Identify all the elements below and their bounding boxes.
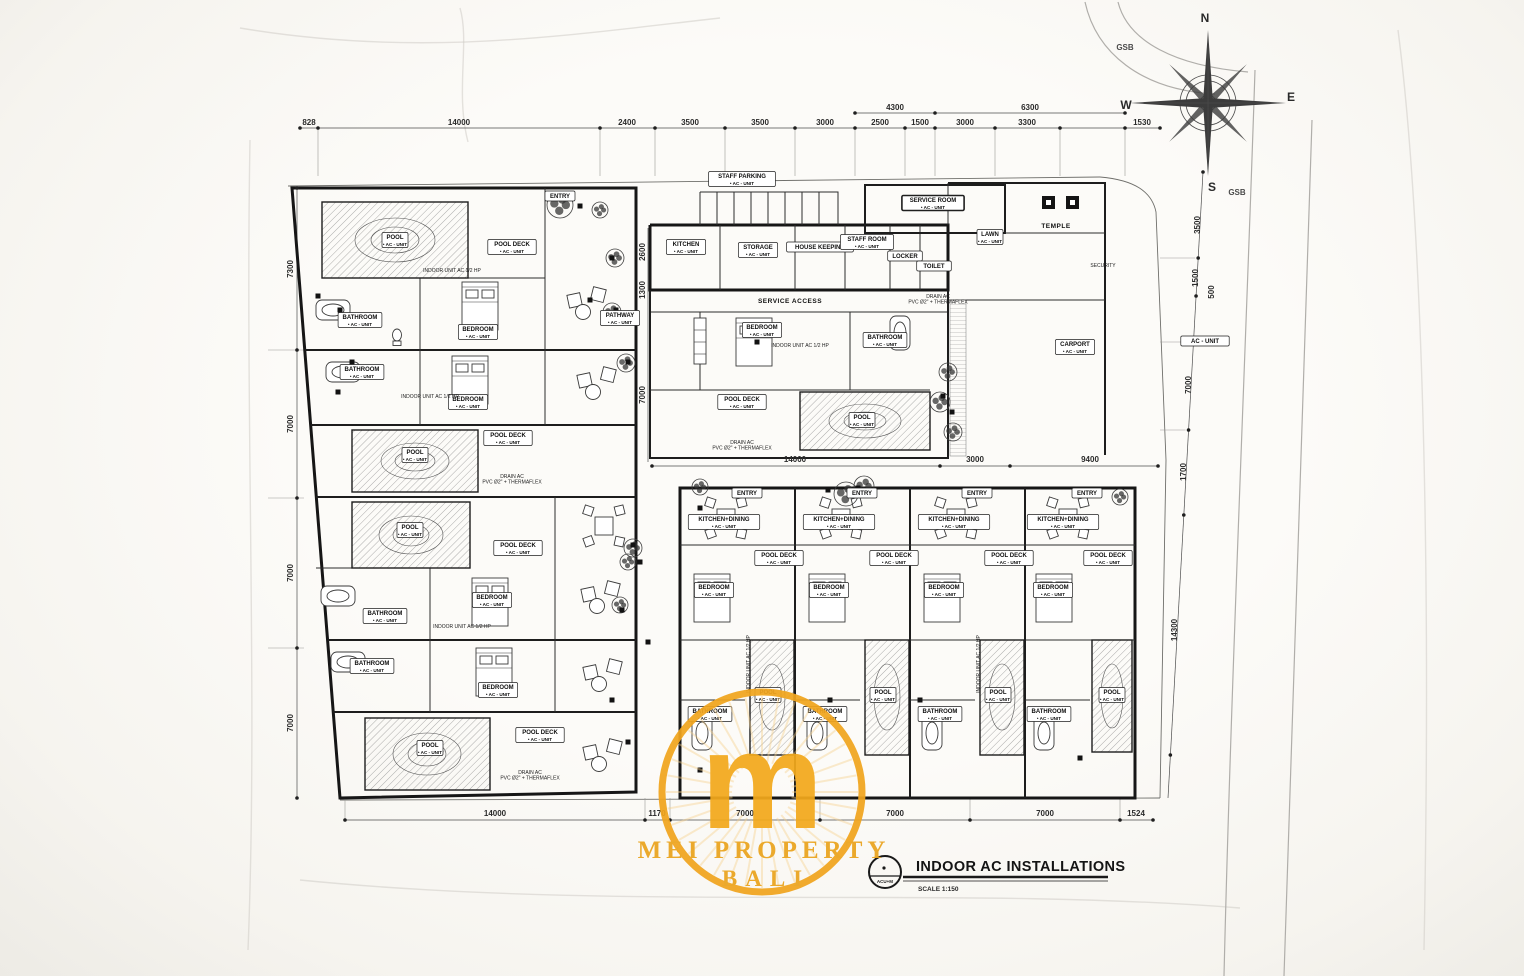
svg-text:POOL: POOL — [874, 690, 891, 696]
annotation-note: TEMPLE — [1041, 223, 1071, 230]
room-tag: STORAGE• AC - UNIT — [738, 243, 777, 258]
room-tag: POOL DECK• AC - UNIT — [516, 728, 564, 743]
svg-text:• AC - UNIT: • AC - UNIT — [712, 524, 736, 529]
ac-unit-point — [941, 394, 946, 399]
dimension-label: 3300 — [1018, 118, 1036, 127]
svg-text:• AC - UNIT: • AC - UNIT — [1051, 524, 1075, 529]
room-tag: KITCHEN+DINING• AC - UNIT — [1027, 515, 1098, 530]
ac-unit-point — [631, 543, 636, 548]
svg-text:BEDROOM: BEDROOM — [1037, 585, 1068, 591]
room-tag: POOL• AC - UNIT — [382, 233, 408, 248]
dimension-label: 1524 — [1127, 809, 1145, 818]
ac-unit-point — [950, 410, 955, 415]
dimension-label: 14300 — [1170, 618, 1179, 641]
ac-unit-point — [1078, 756, 1083, 761]
svg-text:• AC - UNIT: • AC - UNIT — [928, 716, 952, 721]
dimension-label: 9400 — [1081, 455, 1099, 464]
svg-text:STAFF PARKING: STAFF PARKING — [718, 174, 766, 180]
svg-text:• AC - UNIT: • AC - UNIT — [528, 737, 552, 742]
room-tag: POOL• AC - UNIT — [849, 413, 875, 428]
dimension-label: 2400 — [618, 118, 636, 127]
svg-text:KITCHEN+DINING: KITCHEN+DINING — [1037, 517, 1089, 523]
svg-text:BATHROOM: BATHROOM — [355, 661, 390, 667]
svg-text:POOL DECK: POOL DECK — [761, 553, 797, 559]
dimension-label: 7000 — [638, 386, 647, 404]
dimension-label: 7000 — [286, 564, 295, 582]
svg-text:BATHROOM: BATHROOM — [343, 315, 378, 321]
svg-text:BATHROOM: BATHROOM — [368, 611, 403, 617]
svg-text:• AC - UNIT: • AC - UNIT — [1041, 592, 1065, 597]
dimension-label: 14000 — [484, 809, 507, 818]
svg-text:• AC - UNIT: • AC - UNIT — [767, 560, 791, 565]
svg-text:• AC - UNIT: • AC - UNIT — [608, 320, 632, 325]
svg-text:• AC - UNIT: • AC - UNIT — [921, 205, 945, 210]
room-tag: POOL DECK• AC - UNIT — [870, 551, 918, 566]
annotation-note: PVC Ø2" + THERMAFLEX — [482, 480, 542, 486]
room-tag: BATHROOM• AC - UNIT — [350, 659, 394, 674]
svg-text:POOL DECK: POOL DECK — [490, 433, 526, 439]
svg-text:• AC - UNIT: • AC - UNIT — [873, 342, 897, 347]
svg-text:ENTRY: ENTRY — [1077, 491, 1097, 497]
room-tag: POOL DECK• AC - UNIT — [755, 551, 803, 566]
svg-text:ENTRY: ENTRY — [550, 194, 570, 200]
annotation-note: INDOOR UNIT AC 1/2 HP — [976, 634, 982, 692]
room-tag: POOL• AC - UNIT — [397, 523, 423, 538]
svg-text:POOL DECK: POOL DECK — [876, 553, 912, 559]
logo-monogram: m — [701, 704, 824, 858]
svg-text:• AC - UNIT: • AC - UNIT — [986, 697, 1010, 702]
plant — [930, 392, 950, 412]
plant — [592, 202, 608, 218]
svg-text:• AC - UNIT: • AC - UNIT — [730, 181, 754, 186]
room-tag: POOL DECK• AC - UNIT — [985, 551, 1033, 566]
ac-unit-point — [626, 740, 631, 745]
svg-text:KITCHEN+DINING: KITCHEN+DINING — [928, 517, 980, 523]
dimension-label: 3000 — [956, 118, 974, 127]
dimension-label: 1300 — [638, 281, 647, 299]
svg-text:STORAGE: STORAGE — [743, 245, 773, 251]
annotation-note: PVC Ø2" + THERMAFLEX — [500, 776, 560, 782]
svg-text:• AC - UNIT: • AC - UNIT — [817, 592, 841, 597]
svg-text:• AC - UNIT: • AC - UNIT — [978, 239, 1002, 244]
compass-south: S — [1208, 180, 1216, 194]
svg-text:• AC - UNIT: • AC - UNIT — [855, 244, 879, 249]
room-tag: BEDROOM• AC - UNIT — [809, 583, 848, 598]
room-tag: SERVICE ROOM• AC - UNIT — [902, 196, 964, 211]
annotation-note: INDOOR UNIT AC 1/2 HP — [401, 394, 459, 400]
ac-unit-point — [918, 698, 923, 703]
room-tag: CARPORT• AC - UNIT — [1055, 340, 1094, 355]
drawing-title: INDOOR AC INSTALLATIONS — [916, 859, 1126, 875]
svg-text:KITCHEN: KITCHEN — [673, 242, 700, 248]
ac-unit-point — [610, 698, 615, 703]
svg-text:POOL: POOL — [1103, 690, 1120, 696]
annotation-note: PVC Ø2" + THERMAFLEX — [908, 300, 968, 306]
svg-text:• AC - UNIT: • AC - UNIT — [1096, 560, 1120, 565]
annotation-note: SECURITY — [1090, 263, 1116, 269]
room-tag: LOCKER — [888, 251, 923, 261]
room-tag: PATHWAY• AC - UNIT — [600, 311, 639, 326]
svg-text:• AC - UNIT: • AC - UNIT — [360, 668, 384, 673]
room-tag: STAFF ROOM• AC - UNIT — [841, 235, 894, 250]
room-tag: POOL• AC - UNIT — [402, 448, 428, 463]
staff-parking-stalls — [717, 192, 819, 225]
drawing-scale: SCALE 1:150 — [918, 886, 959, 893]
dimension-label: 2600 — [638, 243, 647, 261]
room-tag: POOL• AC - UNIT — [870, 688, 896, 703]
room-tag: BEDROOM• AC - UNIT — [1033, 583, 1072, 598]
svg-text:POOL: POOL — [406, 450, 423, 456]
svg-text:ENTRY: ENTRY — [852, 491, 872, 497]
ac-unit-point — [610, 256, 615, 261]
svg-text:• AC - UNIT: • AC - UNIT — [500, 249, 524, 254]
dimension-label: 1530 — [1133, 118, 1151, 127]
room-tag: POOL DECK• AC - UNIT — [1084, 551, 1132, 566]
svg-text:ENTRY: ENTRY — [737, 491, 757, 497]
svg-text:• AC - UNIT: • AC - UNIT — [486, 692, 510, 697]
svg-text:• AC - UNIT: • AC - UNIT — [932, 592, 956, 597]
svg-text:KITCHEN+DINING: KITCHEN+DINING — [698, 517, 750, 523]
room-tag: BATHROOM• AC - UNIT — [338, 313, 382, 328]
svg-text:BATHROOM: BATHROOM — [1032, 709, 1067, 715]
svg-text:POOL DECK: POOL DECK — [724, 397, 760, 403]
room-tag: POOL• AC - UNIT — [1099, 688, 1125, 703]
ac-unit-point — [638, 560, 643, 565]
svg-text:BATHROOM: BATHROOM — [345, 367, 380, 373]
room-tag: BEDROOM• AC - UNIT — [472, 593, 511, 608]
gsb-label-top: GSB — [1116, 43, 1134, 52]
room-tag: KITCHEN+DINING• AC - UNIT — [688, 515, 759, 530]
svg-text:AC - UNIT: AC - UNIT — [1191, 339, 1219, 345]
room-tag: KITCHEN+DINING• AC - UNIT — [918, 515, 989, 530]
room-tag: TOILET — [917, 261, 952, 271]
svg-text:BEDROOM: BEDROOM — [746, 325, 777, 331]
annotation-note: PVC Ø2" + THERMAFLEX — [712, 446, 772, 452]
room-tag: BEDROOM• AC - UNIT — [458, 325, 497, 340]
svg-text:BEDROOM: BEDROOM — [813, 585, 844, 591]
dimension-label: 4300 — [886, 103, 904, 112]
svg-text:POOL DECK: POOL DECK — [522, 730, 558, 736]
svg-text:BEDROOM: BEDROOM — [928, 585, 959, 591]
dimension-label: 3500 — [1193, 216, 1202, 234]
room-tag: BEDROOM• AC - UNIT — [924, 583, 963, 598]
dimension-label: 3500 — [681, 118, 699, 127]
svg-text:BEDROOM: BEDROOM — [462, 327, 493, 333]
ac-unit-point — [755, 340, 760, 345]
dimension-label: 3000 — [816, 118, 834, 127]
compass-north: N — [1201, 11, 1210, 25]
dimension-label: 6300 — [1021, 103, 1039, 112]
svg-text:• AC - UNIT: • AC - UNIT — [1037, 716, 1061, 721]
ac-unit-point — [646, 640, 651, 645]
ac-unit-point — [620, 608, 625, 613]
svg-text:• AC - UNIT: • AC - UNIT — [350, 374, 374, 379]
svg-text:KITCHEN+DINING: KITCHEN+DINING — [813, 517, 865, 523]
svg-text:SERVICE ROOM: SERVICE ROOM — [910, 198, 957, 204]
watermark-logo: m MEI PROPERTY BALI — [638, 692, 891, 892]
dimension-label: 7000 — [886, 809, 904, 818]
room-tag: POOL DECK• AC - UNIT — [718, 395, 766, 410]
room-tag: BEDROOM• AC - UNIT — [742, 323, 781, 338]
gsb-label-bottom: GSB — [1228, 188, 1246, 197]
watermark-place: BALI — [722, 866, 810, 891]
svg-text:POOL DECK: POOL DECK — [500, 543, 536, 549]
floor-plan-drawing: 8281400024003500350030002500150030003300… — [0, 0, 1524, 976]
svg-text:BEDROOM: BEDROOM — [482, 685, 513, 691]
room-tag: ENTRY — [1072, 488, 1102, 498]
svg-text:• AC - UNIT: • AC - UNIT — [466, 334, 490, 339]
room-tag: BATHROOM• AC - UNIT — [918, 707, 962, 722]
dimension-label: 1500 — [1191, 269, 1200, 287]
svg-text:HOUSE KEEPING: HOUSE KEEPING — [795, 245, 845, 251]
dimension-label: 7000 — [286, 415, 295, 433]
dimension-label: 3000 — [966, 455, 984, 464]
room-tag: ENTRY — [962, 488, 992, 498]
room-tag: ENTRY — [847, 488, 877, 498]
dimension-label: 500 — [1207, 285, 1216, 299]
room-tag: BATHROOM• AC - UNIT — [1027, 707, 1071, 722]
svg-text:• AC - UNIT: • AC - UNIT — [506, 550, 530, 555]
title-block: ACU+M INDOOR AC INSTALLATIONS SCALE 1:15… — [869, 856, 1126, 893]
ac-unit-point — [338, 308, 343, 313]
svg-text:BATHROOM: BATHROOM — [923, 709, 958, 715]
dimension-label: 2500 — [871, 118, 889, 127]
annotation-note: INDOOR UNIT AC 1/2 HP — [771, 343, 829, 349]
svg-text:BATHROOM: BATHROOM — [868, 335, 903, 341]
ac-unit-point — [336, 390, 341, 395]
room-tag: LAWN• AC - UNIT — [977, 230, 1003, 245]
svg-text:TOILET: TOILET — [923, 264, 945, 270]
room-tag: KITCHEN• AC - UNIT — [666, 240, 705, 255]
svg-text:• AC - UNIT: • AC - UNIT — [1100, 697, 1124, 702]
room-tag: AC - UNIT — [1181, 336, 1229, 346]
dimension-label: 828 — [302, 118, 316, 127]
room-tag: POOL• AC - UNIT — [417, 741, 443, 756]
ac-unit-point — [316, 294, 321, 299]
ac-unit-point — [826, 488, 831, 493]
svg-text:BEDROOM: BEDROOM — [476, 595, 507, 601]
dimension-label: 7000 — [1036, 809, 1054, 818]
svg-text:• AC - UNIT: • AC - UNIT — [997, 560, 1021, 565]
blueprint-page: 8281400024003500350030002500150030003300… — [0, 0, 1524, 976]
svg-text:• AC - UNIT: • AC - UNIT — [827, 524, 851, 529]
svg-text:LOCKER: LOCKER — [892, 254, 918, 260]
svg-text:STAFF ROOM: STAFF ROOM — [847, 237, 886, 243]
room-tag: STAFF PARKING• AC - UNIT — [709, 172, 776, 187]
svg-text:POOL DECK: POOL DECK — [991, 553, 1027, 559]
compass-east: E — [1287, 90, 1295, 104]
ac-unit-point — [698, 506, 703, 511]
svg-text:• AC - UNIT: • AC - UNIT — [348, 322, 372, 327]
room-tag: ENTRY — [732, 488, 762, 498]
dimension-label: 14000 — [784, 455, 807, 464]
svg-text:• AC - UNIT: • AC - UNIT — [418, 750, 442, 755]
room-tag: BEDROOM• AC - UNIT — [694, 583, 733, 598]
svg-text:POOL: POOL — [401, 525, 418, 531]
compass-west: W — [1120, 98, 1132, 112]
svg-text:• AC - UNIT: • AC - UNIT — [403, 457, 427, 462]
plant — [1112, 489, 1128, 505]
ac-unit-point — [828, 698, 833, 703]
svg-text:• AC - UNIT: • AC - UNIT — [746, 252, 770, 257]
annotation-note: INDOOR UNIT AC 1/2 HP — [433, 624, 491, 630]
svg-text:• AC - UNIT: • AC - UNIT — [850, 422, 874, 427]
svg-text:POOL: POOL — [421, 743, 438, 749]
svg-text:• AC - UNIT: • AC - UNIT — [882, 560, 906, 565]
room-tag: POOL DECK• AC - UNIT — [488, 240, 536, 255]
ac-unit-point — [578, 204, 583, 209]
ac-unit-point — [588, 298, 593, 303]
room-tag: POOL• AC - UNIT — [985, 688, 1011, 703]
svg-text:LAWN: LAWN — [981, 232, 999, 238]
room-tag: KITCHEN+DINING• AC - UNIT — [803, 515, 874, 530]
svg-text:• AC - UNIT: • AC - UNIT — [750, 332, 774, 337]
room-tag: ENTRY — [545, 191, 575, 201]
ac-unit-point — [626, 360, 631, 365]
room-tag: BATHROOM• AC - UNIT — [363, 609, 407, 624]
svg-text:• AC - UNIT: • AC - UNIT — [496, 440, 520, 445]
room-tag: POOL DECK• AC - UNIT — [484, 431, 532, 446]
plant — [620, 554, 636, 570]
room-tag: BATHROOM• AC - UNIT — [340, 365, 384, 380]
dimension-label: 1500 — [911, 118, 929, 127]
svg-text:CARPORT: CARPORT — [1060, 342, 1090, 348]
svg-text:• AC - UNIT: • AC - UNIT — [1063, 349, 1087, 354]
room-tag: BATHROOM• AC - UNIT — [863, 333, 907, 348]
svg-text:POOL DECK: POOL DECK — [1090, 553, 1126, 559]
svg-text:PATHWAY: PATHWAY — [606, 313, 635, 319]
detail-bubble-ref: ACU+M — [877, 879, 893, 884]
annotation-note: INDOOR UNIT AC 1/2 HP — [746, 634, 752, 692]
svg-text:POOL: POOL — [853, 415, 870, 421]
dimension-label: 14000 — [448, 118, 471, 127]
dimension-label: 7300 — [286, 260, 295, 278]
svg-text:• AC - UNIT: • AC - UNIT — [942, 524, 966, 529]
svg-text:• AC - UNIT: • AC - UNIT — [480, 602, 504, 607]
svg-text:POOL DECK: POOL DECK — [494, 242, 530, 248]
svg-text:POOL: POOL — [386, 235, 403, 241]
svg-text:ENTRY: ENTRY — [967, 491, 987, 497]
plant — [606, 249, 624, 267]
svg-text:BEDROOM: BEDROOM — [698, 585, 729, 591]
room-tag: POOL DECK• AC - UNIT — [494, 541, 542, 556]
svg-text:• AC - UNIT: • AC - UNIT — [398, 532, 422, 537]
dimension-label: 7000 — [1184, 376, 1193, 394]
svg-text:• AC - UNIT: • AC - UNIT — [871, 697, 895, 702]
room-tag: BEDROOM• AC - UNIT — [478, 683, 517, 698]
svg-text:• AC - UNIT: • AC - UNIT — [674, 249, 698, 254]
svg-text:• AC - UNIT: • AC - UNIT — [730, 404, 754, 409]
svg-text:• AC - UNIT: • AC - UNIT — [756, 697, 780, 702]
svg-text:• AC - UNIT: • AC - UNIT — [373, 618, 397, 623]
svg-text:• AC - UNIT: • AC - UNIT — [702, 592, 726, 597]
annotation-note: INDOOR UNIT AC 1/2 HP — [423, 268, 481, 274]
svg-text:• AC - UNIT: • AC - UNIT — [383, 242, 407, 247]
dimension-label: 3500 — [751, 118, 769, 127]
watermark-name: MEI PROPERTY — [638, 837, 891, 864]
dimension-label: 1700 — [1179, 463, 1188, 481]
ac-unit-point — [350, 360, 355, 365]
svg-text:POOL: POOL — [989, 690, 1006, 696]
dimension-label: 7000 — [286, 714, 295, 732]
annotation-note: SERVICE ACCESS — [758, 298, 822, 305]
svg-text:• AC - UNIT: • AC - UNIT — [456, 404, 480, 409]
